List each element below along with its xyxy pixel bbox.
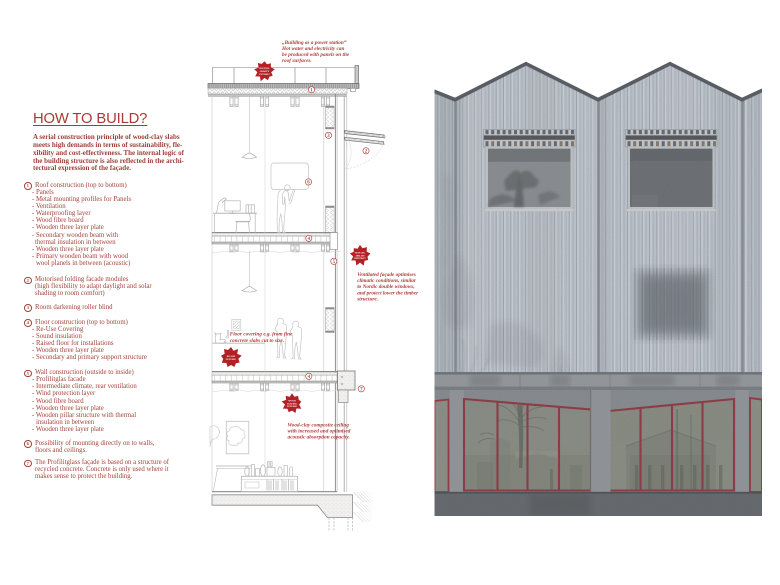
- svg-text:Ventilated façade optimises: Ventilated façade optimises: [357, 272, 416, 278]
- svg-text:climatic conditions, similar: climatic conditions, similar: [357, 278, 417, 284]
- svg-text:roof surfaces.: roof surfaces.: [282, 58, 312, 64]
- svg-text:FUTURE?: FUTURE?: [226, 359, 237, 361]
- svg-text:with increased and optimised: with increased and optimised: [288, 429, 351, 435]
- svg-text:WOOD: WOOD: [288, 400, 296, 402]
- svg-text:ABILITY: ABILITY: [355, 254, 365, 257]
- svg-text:SUSTAIN-: SUSTAIN-: [355, 251, 366, 254]
- svg-text:acoustic absorption capacity.: acoustic absorption capacity.: [288, 435, 350, 441]
- svg-text:Wood-clay composite ceiling: Wood-clay composite ceiling: [288, 422, 350, 428]
- svg-text:structure.: structure.: [356, 296, 378, 302]
- svg-text:to Nordic double windows,: to Nordic double windows,: [357, 284, 414, 290]
- svg-text:STAYING: STAYING: [287, 402, 297, 405]
- svg-text:FUTURE?: FUTURE?: [259, 74, 270, 76]
- svg-text:SUSTAIN-: SUSTAIN-: [259, 67, 270, 70]
- svg-text:FUTURE?: FUTURE?: [287, 406, 298, 408]
- svg-text:ABILITY: ABILITY: [260, 70, 270, 73]
- svg-text:concrete slabs cut to size.: concrete slabs cut to size.: [230, 338, 284, 344]
- svg-text:and protect lower the timber: and protect lower the timber: [357, 290, 419, 296]
- svg-text:HISTORY?: HISTORY?: [354, 258, 366, 260]
- svg-text:RE-USE: RE-USE: [227, 356, 236, 358]
- svg-text:Floor covering e.g. from fine: Floor covering e.g. from fine: [230, 331, 293, 337]
